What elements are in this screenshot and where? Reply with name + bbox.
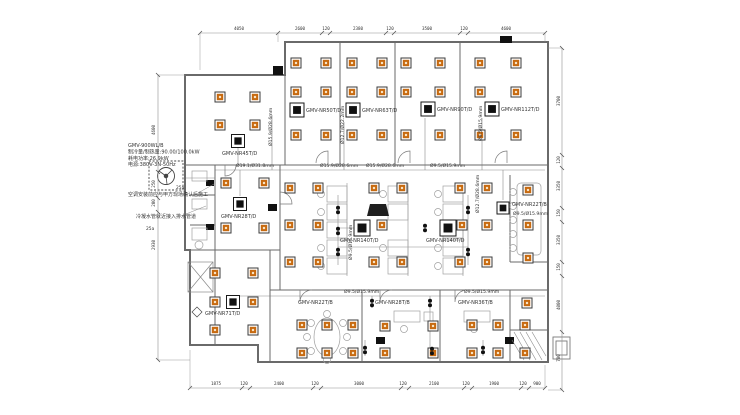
diffuser-center — [405, 91, 407, 93]
diffuser-center — [252, 329, 254, 331]
indoor-unit-label: GMV-NR28T/D — [221, 214, 256, 220]
dim-label-bottom: 120 — [311, 381, 319, 386]
diffuser-center — [263, 182, 265, 184]
indoor-unit-label: GMV-NR28T/B — [375, 300, 410, 306]
diffuser-center — [381, 134, 383, 136]
pipe-flow-label: 25a — [176, 185, 185, 191]
dim-label-bottom: 1875 — [211, 381, 222, 386]
diffuser-center — [405, 62, 407, 64]
diffuser-center — [289, 224, 291, 226]
dim-label-bottom: 1900 — [489, 381, 500, 386]
dim-label-left: 200 — [151, 199, 156, 207]
diffuser-center — [317, 187, 319, 189]
diffuser-center — [432, 325, 434, 327]
branch-valve — [336, 231, 340, 235]
indoor-unit-label: GMV-NR36T/B — [458, 300, 493, 306]
indoor-unit-label: GMV-NR71T/D — [205, 311, 240, 317]
pipe-size-label: Ø15.9/Ø28.6mm — [267, 107, 274, 146]
branch-valve — [336, 248, 340, 252]
diffuser-center — [439, 62, 441, 64]
diffuser-center — [471, 352, 473, 354]
diffuser-center — [225, 182, 227, 184]
pipe-size-label: Ø15.9/Ø28.6mm — [366, 162, 405, 169]
diffuser-center — [381, 224, 383, 226]
branch-valve — [423, 224, 427, 228]
diffuser-center — [352, 352, 354, 354]
diffuser-center — [526, 302, 528, 304]
diffuser-center — [214, 329, 216, 331]
diffuser-center — [351, 62, 353, 64]
dim-label-right: 3350 — [556, 234, 561, 245]
indoor-unit-label: GMV-NR22T/B — [298, 300, 333, 306]
floor-plan-drawing: GMV-NR45T/DGMV-NR50T/DGMV-NR63T/DGMV-NR9… — [0, 0, 740, 415]
dim-label-right: 700 — [556, 354, 561, 362]
indoor-unit-label: GMV-NR140T/D — [426, 238, 465, 244]
diffuser-center — [317, 261, 319, 263]
dim-label-bottom: 3000 — [354, 381, 365, 386]
diffuser-center — [295, 91, 297, 93]
diffuser-center — [219, 96, 221, 98]
cassette-unit — [293, 106, 301, 114]
diffuser-center — [401, 261, 403, 263]
diffuser-center — [461, 224, 463, 226]
pipe-size-label: Ø12.7/Ø22.2mm — [339, 105, 346, 144]
pipe-size-label: Ø9.5/Ø15.9mm — [344, 288, 380, 295]
diffuser-center — [381, 91, 383, 93]
diffuser-center — [289, 187, 291, 189]
dim-label-left: 4600 — [151, 124, 156, 135]
branch-valve — [481, 350, 485, 354]
diffuser-center — [252, 301, 254, 303]
branch-valve — [430, 351, 434, 355]
branch-valve — [466, 206, 470, 210]
dim-label-top: 3500 — [422, 26, 433, 31]
indoor-unit-label: GMV-NR140T/D — [340, 238, 379, 244]
branch-valve — [423, 228, 427, 232]
branch-valve — [370, 303, 374, 307]
branch-valve — [363, 346, 367, 350]
symbols-layer: GMV-NR45T/DGMV-NR50T/DGMV-NR63T/DGMV-NR9… — [128, 26, 561, 386]
diffuser-center — [471, 324, 473, 326]
diffuser-center — [527, 189, 529, 191]
dim-label-top: 120 — [322, 26, 330, 31]
indoor-unit-label: GMV-NR112T/D — [501, 107, 540, 113]
diffuser-center — [351, 134, 353, 136]
diffuser-center — [527, 257, 529, 259]
diffuser-center — [301, 324, 303, 326]
diffuser-center — [381, 62, 383, 64]
branch-valve — [370, 299, 374, 303]
dim-label-right: 4000 — [556, 299, 561, 310]
pipe-size-label: Ø15.9/Ø28.6mm — [320, 162, 359, 169]
cassette-unit — [236, 200, 243, 207]
diffuser-center — [254, 96, 256, 98]
diffuser-center — [515, 62, 517, 64]
branch-valve — [466, 248, 470, 252]
diffuser-center — [214, 301, 216, 303]
dim-label-top: 120 — [386, 26, 394, 31]
pipe-flow-label: 25a — [146, 226, 155, 232]
diffuser-center — [524, 324, 526, 326]
diffuser-center — [301, 352, 303, 354]
dim-label-top: 120 — [460, 26, 468, 31]
cassette-unit — [229, 298, 236, 305]
pipe-size-label: Ø9.5/Ø15.9mm — [513, 210, 549, 217]
diffuser-center — [486, 261, 488, 263]
indoor-unit-label: GMV-NR22T/B — [512, 202, 547, 208]
diffuser-center — [497, 324, 499, 326]
outdoor-unit-spec: 耗电功率:26.9kW — [128, 155, 169, 162]
cad-floorplan-screenshot: { "drawing_title": "VRF air-conditioning… — [0, 0, 740, 415]
dim-label-right: 120 — [556, 156, 561, 164]
dim-label-top: 2600 — [295, 26, 306, 31]
office-desk — [394, 311, 433, 333]
diffuser-center — [439, 91, 441, 93]
drain-diamond — [192, 307, 202, 317]
diffuser-center — [352, 324, 354, 326]
diffuser-center — [219, 124, 221, 126]
diffuser-center — [459, 187, 461, 189]
diffuser-center — [225, 227, 227, 229]
diffuser-center — [401, 187, 403, 189]
branch-valve — [336, 206, 340, 210]
diffuser-center — [439, 134, 441, 136]
branch-valve — [428, 299, 432, 303]
branch-valve — [336, 252, 340, 256]
branch-valve — [466, 252, 470, 256]
dim-label-right: 150 — [556, 263, 561, 271]
cassette-unit — [358, 224, 367, 233]
diffuser-center — [515, 134, 517, 136]
diffuser-center — [459, 261, 461, 263]
pipe-size-label: Ø9.5/Ø15.9mm — [464, 288, 500, 295]
diffuser-center — [351, 91, 353, 93]
dim-label-bottom: 120 — [519, 381, 527, 386]
diffuser-center — [497, 352, 499, 354]
diffuser-center — [479, 62, 481, 64]
cassette-unit — [424, 105, 432, 113]
outdoor-unit-spec: 制冷量/制热量:90.00/100.0kW — [128, 148, 200, 155]
installation-note: 空调安装前应与甲方现场确认后施工 — [128, 191, 208, 198]
diffuser-center — [325, 91, 327, 93]
dim-label-top: 2380 — [353, 26, 364, 31]
cassette-unit — [488, 105, 496, 113]
pipe-size-label: Ø9.5/Ø15.9mm — [430, 162, 466, 169]
diffuser-center — [405, 134, 407, 136]
cassette-unit — [500, 205, 507, 212]
diffuser-center — [325, 134, 327, 136]
diffuser-center — [479, 91, 481, 93]
diffuser-center — [486, 187, 488, 189]
diffuser-center — [384, 325, 386, 327]
dim-label-top: 4050 — [234, 26, 245, 31]
dim-label-right: 3700 — [556, 95, 561, 106]
branch-valve — [336, 227, 340, 231]
diffuser-center — [214, 272, 216, 274]
dim-label-right: 150 — [556, 209, 561, 217]
printer-equipment — [367, 204, 389, 216]
dim-label-bottom: 900 — [533, 381, 541, 386]
diffuser-center — [325, 62, 327, 64]
diffuser-center — [263, 227, 265, 229]
diffuser-center — [326, 352, 328, 354]
diffuser-center — [252, 272, 254, 274]
entry-door-x — [188, 262, 213, 292]
cassette-unit — [349, 106, 357, 114]
diffuser-center — [317, 224, 319, 226]
branch-valve — [428, 303, 432, 307]
branch-valve — [336, 210, 340, 214]
pantry-fixtures — [192, 171, 207, 249]
diffuser-center — [373, 261, 375, 263]
branch-valve — [481, 346, 485, 350]
pipe-size-label: Ø12.7/Ø28.6mm — [474, 174, 481, 213]
branch-valve — [466, 210, 470, 214]
outdoor-unit-spec: 电源:380V-3N-50Hz — [128, 161, 176, 168]
dim-label-bottom: 120 — [240, 381, 248, 386]
diffuser-center — [527, 224, 529, 226]
dim-label-bottom: 120 — [399, 381, 407, 386]
diffuser-center — [295, 62, 297, 64]
dim-label-left: 250 — [151, 180, 156, 188]
indoor-unit-label: GMV-NR90T/D — [437, 107, 472, 113]
pipe-size-label: Ø19.1/Ø31.8mm — [236, 162, 275, 169]
diffuser-center — [254, 124, 256, 126]
branch-valve — [430, 347, 434, 351]
diffuser-center — [373, 187, 375, 189]
branch-valve — [363, 350, 367, 354]
indoor-unit-label: GMV-NR63T/D — [362, 108, 397, 114]
outdoor-unit-spec: GMV-900WL/B — [128, 143, 164, 149]
dim-label-top: 4600 — [501, 26, 512, 31]
pipe-size-label: Ø9.5/Ø15.9mm — [347, 224, 354, 260]
diffuser-center — [289, 261, 291, 263]
dim-label-right: 3350 — [556, 180, 561, 191]
dim-label-bottom: 2100 — [429, 381, 440, 386]
diffuser-center — [524, 352, 526, 354]
dim-label-left: 2930 — [151, 239, 156, 250]
installation-note: 冷凝水管就近接入排水管道 — [136, 213, 196, 220]
indoor-unit-label: GMV-NR50T/D — [306, 108, 341, 114]
diffuser-center — [486, 224, 488, 226]
diffuser-center — [295, 134, 297, 136]
indoor-unit-label: GMV-NR45T/D — [222, 151, 257, 157]
cassette-unit — [234, 137, 241, 144]
diffuser-center — [515, 91, 517, 93]
dim-label-bottom: 120 — [462, 381, 470, 386]
diffuser-center — [384, 352, 386, 354]
dim-label-bottom: 2400 — [274, 381, 285, 386]
cassette-unit — [444, 224, 453, 233]
pipe-size-label: Ø9.5/Ø15.9mm — [477, 105, 484, 141]
diffuser-center — [326, 324, 328, 326]
